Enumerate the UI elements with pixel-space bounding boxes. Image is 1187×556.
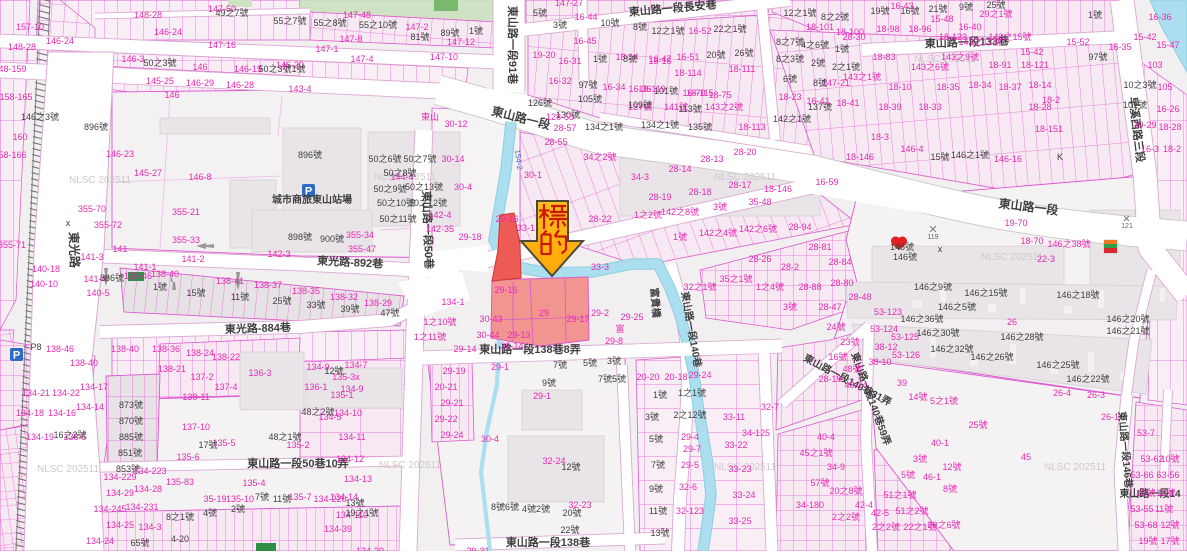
svg-text:140-5: 140-5: [86, 288, 109, 298]
svg-text:886號: 886號: [100, 272, 124, 283]
svg-text:18-70: 18-70: [1020, 236, 1043, 246]
svg-text:17號: 17號: [1160, 535, 1179, 546]
svg-text:18-35: 18-35: [936, 82, 959, 92]
svg-text:40-4: 40-4: [817, 432, 835, 442]
svg-text:29-1: 29-1: [533, 391, 551, 401]
svg-text:50之6號: 50之6號: [368, 153, 401, 164]
svg-text:146之5號: 146之5號: [938, 301, 976, 312]
svg-text:16-47: 16-47: [648, 54, 671, 64]
svg-text:143之2號: 143之2號: [705, 101, 743, 112]
svg-text:5號: 5號: [533, 7, 547, 18]
svg-text:28-20: 28-20: [733, 147, 756, 157]
svg-text:16-45: 16-45: [573, 36, 596, 46]
svg-text:146-16: 146-16: [994, 154, 1022, 164]
svg-text:28-57: 28-57: [553, 123, 576, 133]
svg-text:16-36: 16-36: [1148, 12, 1171, 22]
svg-text:28-19: 28-19: [648, 192, 671, 202]
svg-text:32-7: 32-7: [761, 402, 779, 412]
svg-text:24號: 24號: [826, 321, 845, 332]
svg-text:16-36: 16-36: [628, 84, 651, 94]
svg-text:63-56: 63-56: [1156, 470, 1179, 480]
svg-text:134-20: 134-20: [356, 546, 384, 551]
svg-text:147-12: 147-12: [447, 37, 475, 47]
svg-text:15號: 15號: [1136, 487, 1155, 498]
svg-text:15-47: 15-47: [1156, 40, 1179, 50]
svg-text:15-42: 15-42: [1020, 47, 1043, 57]
svg-text:143-4: 143-4: [288, 84, 311, 94]
svg-text:138-40: 138-40: [111, 344, 139, 354]
svg-text:97號: 97號: [1088, 51, 1107, 62]
svg-text:39: 39: [897, 378, 907, 388]
svg-text:7號5號: 7號5號: [598, 373, 626, 384]
svg-text:1號: 1號: [469, 25, 483, 36]
svg-text:8號: 8號: [623, 53, 637, 64]
svg-text:135-3x: 135-3x: [332, 372, 360, 382]
svg-text:134-28: 134-28: [134, 484, 162, 494]
svg-text:42-5: 42-5: [871, 508, 889, 518]
svg-text:16之2號: 16之2號: [53, 429, 86, 440]
svg-text:113號: 113號: [678, 103, 701, 114]
svg-text:東光路: 東光路: [66, 232, 82, 270]
svg-text:3號: 3號: [553, 19, 567, 30]
svg-text:P: P: [13, 350, 20, 362]
svg-text:146之38號: 146之38號: [1047, 238, 1090, 249]
svg-text:12之1號: 12之1號: [651, 25, 684, 36]
svg-text:148-28: 148-28: [134, 10, 162, 20]
svg-text:134-11: 134-11: [338, 432, 365, 442]
svg-text:134-223: 134-223: [133, 466, 166, 476]
svg-text:109號: 109號: [628, 99, 652, 110]
svg-text:NLSC 202511: NLSC 202511: [69, 175, 132, 186]
svg-text:48-14: 48-14: [844, 380, 867, 390]
svg-text:148-159: 148-159: [0, 64, 27, 74]
svg-text:9號: 9號: [542, 377, 556, 388]
svg-text:355-47: 355-47: [348, 244, 376, 254]
svg-text:51之1號: 51之1號: [883, 489, 916, 500]
svg-text:28-80: 28-80: [830, 278, 853, 288]
svg-text:29-13: 29-13: [507, 330, 530, 340]
svg-text:146之36號: 146之36號: [900, 313, 943, 324]
svg-text:5號: 5號: [649, 433, 663, 444]
svg-text:142之6號: 142之6號: [739, 223, 777, 234]
svg-text:15號: 15號: [186, 287, 205, 298]
svg-text:18-121: 18-121: [1021, 60, 1049, 70]
svg-text:146號: 146號: [893, 251, 917, 262]
svg-text:33-23: 33-23: [728, 464, 751, 474]
svg-text:18-151: 18-151: [1035, 124, 1063, 134]
svg-text:53-55: 53-55: [1130, 504, 1153, 514]
svg-text:53-125: 53-125: [891, 332, 919, 342]
svg-text:21號: 21號: [928, 3, 947, 14]
svg-text:34-180: 34-180: [796, 500, 824, 510]
svg-text:147-48: 147-48: [343, 10, 371, 20]
svg-text:16-26: 16-26: [1156, 104, 1179, 114]
svg-text:35之1號: 35之1號: [719, 273, 752, 284]
svg-text:9號: 9號: [959, 1, 973, 12]
svg-text:146之15號: 146之15號: [964, 287, 1007, 298]
svg-text:134之1號: 134之1號: [585, 121, 623, 132]
svg-text:50之8號: 50之8號: [383, 167, 416, 178]
svg-text:121: 121: [1121, 223, 1133, 230]
svg-text:4號2號: 4號2號: [522, 503, 550, 514]
svg-text:29-24: 29-24: [688, 370, 711, 380]
svg-text:355-34: 355-34: [346, 230, 374, 240]
svg-text:29-31: 29-31: [466, 546, 489, 551]
svg-text:8之1號: 8之1號: [166, 511, 194, 522]
svg-text:29-5: 29-5: [681, 460, 699, 470]
svg-text:18-101: 18-101: [806, 22, 834, 32]
svg-text:39號: 39號: [340, 303, 359, 314]
svg-text:50之3號1號: 50之3號1號: [258, 63, 305, 74]
svg-text:134-25: 134-25: [106, 520, 134, 530]
svg-text:x: x: [66, 218, 71, 228]
svg-text:29-14: 29-14: [453, 344, 476, 354]
svg-text:18-91: 18-91: [988, 60, 1011, 70]
svg-text:143之1號: 143之1號: [843, 71, 881, 82]
svg-text:13號: 13號: [650, 527, 669, 538]
svg-text:146-3: 146-3: [121, 54, 144, 64]
svg-text:146之22號: 146之22號: [1066, 373, 1109, 384]
svg-text:34之2號: 34之2號: [583, 151, 616, 162]
svg-text:7號: 7號: [255, 491, 269, 502]
svg-text:3號: 3號: [713, 201, 727, 212]
svg-text:4之6號: 4之6號: [801, 39, 829, 50]
svg-text:20-18: 20-18: [664, 372, 687, 382]
svg-text:55之7號: 55之7號: [273, 15, 306, 26]
svg-text:16-41: 16-41: [806, 96, 829, 106]
svg-text:355-71: 355-71: [0, 240, 26, 250]
svg-text:101號: 101號: [654, 85, 678, 96]
svg-text:32之1號: 32之1號: [683, 281, 716, 292]
svg-text:138-36: 138-36: [152, 344, 180, 354]
svg-text:33-25: 33-25: [728, 516, 751, 526]
svg-text:134-7: 134-7: [344, 360, 367, 370]
svg-text:26: 26: [1007, 317, 1017, 327]
svg-text:28-19: 28-19: [818, 374, 841, 384]
svg-text:1之10號: 1之10號: [423, 316, 456, 327]
svg-text:16-44: 16-44: [574, 12, 597, 22]
svg-text:53-68: 53-68: [1134, 520, 1157, 530]
svg-text:105: 105: [1157, 82, 1172, 92]
svg-text:141: 141: [112, 244, 127, 254]
svg-text:134-19: 134-19: [26, 432, 54, 442]
svg-text:138-24: 138-24: [186, 348, 214, 358]
svg-text:146-29: 146-29: [186, 78, 214, 88]
svg-text:137-2: 137-2: [190, 372, 213, 382]
svg-text:8號6號: 8號6號: [491, 501, 519, 512]
svg-text:141-3: 141-3: [80, 252, 103, 262]
svg-text:47號: 47號: [380, 307, 399, 318]
svg-text:38-10: 38-10: [868, 357, 891, 367]
svg-text:33號: 33號: [306, 299, 325, 310]
svg-text:28-22: 28-22: [588, 214, 611, 224]
svg-text:142-35: 142-35: [426, 224, 454, 234]
svg-text:15-48: 15-48: [930, 14, 953, 24]
svg-text:1號: 1號: [593, 53, 607, 64]
svg-text:30-14: 30-14: [441, 154, 464, 164]
svg-text:28-88: 28-88: [798, 282, 821, 292]
svg-text:34-125: 34-125: [742, 428, 770, 438]
svg-text:29-8: 29-8: [605, 336, 623, 346]
svg-text:48之1號: 48之1號: [268, 431, 301, 442]
svg-text:20之8號: 20之8號: [829, 485, 862, 496]
svg-text:146: 146: [192, 62, 207, 72]
svg-text:12號: 12號: [561, 461, 580, 472]
svg-text:138-40: 138-40: [151, 269, 179, 279]
svg-text:143之9號: 143之9號: [941, 51, 979, 62]
svg-text:16-59: 16-59: [815, 177, 838, 187]
svg-text:26-1: 26-1: [1101, 412, 1119, 422]
svg-text:19-20: 19-20: [532, 50, 555, 60]
svg-text:10號: 10號: [600, 17, 619, 28]
svg-text:2之2號: 2之2號: [872, 521, 900, 532]
svg-text:134-13: 134-13: [344, 474, 372, 484]
svg-text:50之7號: 50之7號: [403, 153, 436, 164]
svg-text:135-4: 135-4: [242, 478, 265, 488]
svg-text:29-15: 29-15: [494, 285, 517, 295]
svg-text:3號: 3號: [913, 453, 927, 464]
svg-text:29-1: 29-1: [491, 362, 509, 372]
svg-text:東山路一段138巷: 東山路一段138巷: [506, 535, 591, 549]
svg-text:NLSC 202511: NLSC 202511: [37, 464, 100, 475]
svg-text:22號: 22號: [560, 524, 579, 535]
svg-text:P8: P8: [30, 342, 41, 352]
svg-text:126號: 126號: [528, 97, 552, 108]
svg-text:851號: 851號: [118, 447, 142, 458]
svg-text:19-70: 19-70: [1004, 218, 1027, 228]
svg-text:22之1號: 22之1號: [713, 23, 746, 34]
svg-text:158-166: 158-166: [0, 150, 27, 160]
svg-text:20-20: 20-20: [636, 372, 659, 382]
svg-text:12之1號: 12之1號: [783, 7, 816, 18]
svg-text:29: 29: [539, 308, 549, 318]
svg-text:19號: 19號: [1138, 535, 1157, 546]
svg-text:2號: 2號: [231, 503, 245, 514]
svg-text:18-37: 18-37: [998, 82, 1021, 92]
svg-text:16-35: 16-35: [1108, 42, 1131, 52]
svg-text:146之30號: 146之30號: [916, 327, 959, 338]
svg-text:51之2號: 51之2號: [895, 505, 928, 516]
svg-text:143之15號: 143之15號: [988, 31, 1031, 42]
svg-text:10號: 10號: [1160, 453, 1179, 464]
svg-text:18-2: 18-2: [1163, 144, 1181, 154]
svg-text:29-17: 29-17: [566, 314, 589, 324]
svg-text:富: 富: [615, 323, 624, 334]
svg-text:18-146: 18-146: [764, 184, 792, 194]
svg-text:48之2號: 48之2號: [301, 406, 334, 417]
svg-text:1號: 1號: [835, 43, 849, 54]
svg-text:8之3號: 8之3號: [776, 53, 804, 64]
svg-text:146之3號: 146之3號: [21, 111, 59, 122]
svg-text:50之3號: 50之3號: [143, 57, 176, 68]
svg-text:25號: 25號: [986, 0, 1005, 10]
svg-text:28-14: 28-14: [668, 164, 691, 174]
svg-text:33-3: 33-3: [591, 262, 609, 272]
svg-text:147-1: 147-1: [315, 44, 338, 54]
svg-text:57號: 57號: [810, 477, 829, 488]
svg-text:18-98: 18-98: [876, 24, 899, 34]
svg-text:16-34: 16-34: [602, 82, 625, 92]
svg-text:134-12: 134-12: [336, 454, 364, 464]
svg-text:18-75: 18-75: [708, 90, 731, 100]
svg-text:138-35: 138-35: [292, 286, 320, 296]
svg-text:2號: 2號: [811, 57, 825, 68]
svg-text:18-34: 18-34: [968, 80, 991, 90]
svg-text:30-4: 30-4: [481, 434, 499, 444]
svg-text:134-18: 134-18: [16, 408, 44, 418]
svg-text:145-25: 145-25: [146, 76, 174, 86]
svg-text:136-1: 136-1: [304, 382, 327, 392]
svg-text:134-39: 134-39: [324, 524, 352, 534]
svg-text:1之4號: 1之4號: [756, 281, 784, 292]
svg-text:138-11: 138-11: [182, 392, 209, 402]
svg-text:146: 146: [164, 90, 179, 100]
svg-text:22-3: 22-3: [1037, 254, 1055, 264]
svg-text:355-21: 355-21: [172, 207, 200, 217]
svg-text:2之2號: 2之2號: [832, 511, 860, 522]
svg-text:18-113: 18-113: [738, 122, 765, 132]
svg-text:6號: 6號: [783, 73, 797, 84]
svg-text:15-52: 15-52: [1066, 37, 1089, 47]
svg-text:146之20號: 146之20號: [1106, 313, 1149, 324]
svg-text:12號: 12號: [1160, 519, 1179, 530]
svg-text:18-114: 18-114: [674, 68, 701, 78]
svg-text:148-28: 148-28: [8, 42, 36, 52]
svg-text:97號: 97號: [578, 79, 597, 90]
svg-text:29-18: 29-18: [458, 232, 481, 242]
svg-text:18-83: 18-83: [872, 52, 895, 62]
svg-text:128-55: 128-55: [546, 112, 574, 122]
svg-text:28-26: 28-26: [748, 254, 771, 264]
svg-text:89號: 89號: [440, 27, 459, 38]
svg-text:29-25: 29-25: [620, 312, 643, 322]
svg-text:25號: 25號: [272, 295, 291, 306]
svg-text:32-6: 32-6: [679, 482, 697, 492]
svg-text:135-6: 135-6: [176, 452, 199, 462]
svg-text:50之11號: 50之11號: [379, 213, 416, 224]
svg-text:32-123: 32-123: [676, 506, 704, 516]
svg-text:134-229: 134-229: [103, 472, 136, 482]
svg-text:20號: 20號: [562, 507, 581, 518]
svg-text:12號: 12號: [942, 461, 961, 472]
svg-text:49之7號: 49之7號: [215, 7, 248, 18]
svg-text:48號: 48號: [842, 363, 861, 374]
svg-text:18-146: 18-146: [846, 152, 874, 162]
svg-text:45: 45: [1021, 452, 1031, 462]
svg-text:29-24: 29-24: [440, 430, 463, 440]
svg-text:15號: 15號: [930, 151, 949, 162]
svg-text:2之12號: 2之12號: [673, 409, 706, 420]
svg-text:16號: 16號: [900, 5, 919, 16]
svg-text:20號: 20號: [706, 49, 725, 60]
svg-text:18-10: 18-10: [888, 82, 911, 92]
svg-text:16-31: 16-31: [558, 56, 581, 66]
svg-text:29-22: 29-22: [434, 414, 457, 424]
svg-text:355-72: 355-72: [94, 220, 122, 230]
svg-text:K: K: [1057, 152, 1063, 162]
svg-text:29-14: 29-14: [500, 341, 523, 351]
svg-text:141-2: 141-2: [181, 254, 204, 264]
svg-text:18-39: 18-39: [878, 102, 901, 112]
svg-text:城市商旅東山站場: 城市商旅東山站場: [272, 193, 352, 206]
svg-text:8之2號: 8之2號: [821, 11, 849, 22]
svg-text:5之1號: 5之1號: [930, 395, 958, 406]
svg-text:33-11: 33-11: [723, 412, 745, 422]
svg-text:55之10號: 55之10號: [359, 19, 397, 30]
svg-text:134-1: 134-1: [441, 297, 464, 307]
svg-text:1號: 1號: [653, 389, 667, 400]
svg-text:137-10: 137-10: [182, 422, 210, 432]
svg-text:5號: 5號: [583, 357, 597, 368]
svg-text:4-20: 4-20: [171, 534, 189, 544]
svg-text:16-70: 16-70: [682, 88, 705, 98]
svg-text:134-3: 134-3: [138, 522, 161, 532]
svg-text:896號: 896號: [298, 149, 322, 160]
svg-text:33-22: 33-22: [724, 440, 747, 450]
svg-text:140-10: 140-10: [30, 279, 58, 289]
svg-text:34-3: 34-3: [631, 172, 649, 182]
svg-text:35-19: 35-19: [203, 494, 226, 504]
svg-text:134-9: 134-9: [340, 384, 363, 394]
svg-text:870號: 870號: [119, 415, 143, 426]
svg-text:134-21: 134-21: [22, 388, 50, 398]
svg-text:30-4: 30-4: [454, 182, 472, 192]
svg-text:29-21: 29-21: [440, 398, 463, 408]
svg-text:53-123: 53-123: [874, 307, 902, 317]
svg-text:x: x: [938, 244, 943, 254]
svg-text:18-100: 18-100: [836, 27, 864, 37]
svg-text:40-1: 40-1: [931, 438, 949, 448]
svg-text:16號: 16號: [828, 351, 847, 362]
svg-text:146-8: 146-8: [188, 172, 211, 182]
svg-text:135-7: 135-7: [288, 492, 311, 502]
svg-text:142之8號: 142之8號: [661, 206, 699, 217]
svg-text:53-66: 53-66: [1130, 470, 1153, 480]
svg-text:105號: 105號: [578, 93, 602, 104]
svg-text:134-10: 134-10: [334, 408, 362, 418]
svg-text:135-83: 135-83: [166, 477, 194, 487]
svg-text:29-2: 29-2: [591, 308, 609, 318]
svg-text:18-3: 18-3: [871, 132, 889, 142]
svg-text:東山路一段138巷8弄: 東山路一段138巷8弄: [479, 342, 580, 356]
svg-text:134-24: 134-24: [86, 536, 114, 546]
svg-text:65號: 65號: [130, 537, 149, 548]
svg-text:900號: 900號: [320, 233, 344, 244]
svg-text:147-8: 147-8: [339, 34, 362, 44]
svg-text:20之6號: 20之6號: [927, 519, 960, 530]
svg-text:138-46: 138-46: [46, 344, 74, 354]
svg-text:81號: 81號: [410, 31, 429, 42]
svg-text:146之25號: 146之25號: [1036, 359, 1079, 370]
svg-text:16-32: 16-32: [548, 76, 571, 86]
svg-text:146-28: 146-28: [226, 80, 254, 90]
svg-text:138-37: 138-37: [254, 280, 282, 290]
svg-text:140-18: 140-18: [32, 264, 60, 274]
svg-text:146之32號: 146之32號: [930, 343, 973, 354]
svg-text:29-4: 29-4: [681, 432, 699, 442]
svg-text:18-28: 18-28: [1158, 122, 1181, 132]
svg-text:16-51: 16-51: [676, 52, 699, 62]
svg-text:13號: 13號: [1156, 487, 1175, 498]
svg-text:138-40: 138-40: [70, 358, 98, 368]
svg-text:134-16: 134-16: [48, 408, 76, 418]
svg-text:896號: 896號: [84, 121, 108, 132]
svg-text:9號: 9號: [649, 483, 663, 494]
svg-text:134-14: 134-14: [76, 402, 104, 412]
svg-text:138-22: 138-22: [212, 352, 240, 362]
svg-text:355-33: 355-33: [172, 235, 200, 245]
svg-text:NLSC 202511: NLSC 202511: [1044, 462, 1107, 473]
